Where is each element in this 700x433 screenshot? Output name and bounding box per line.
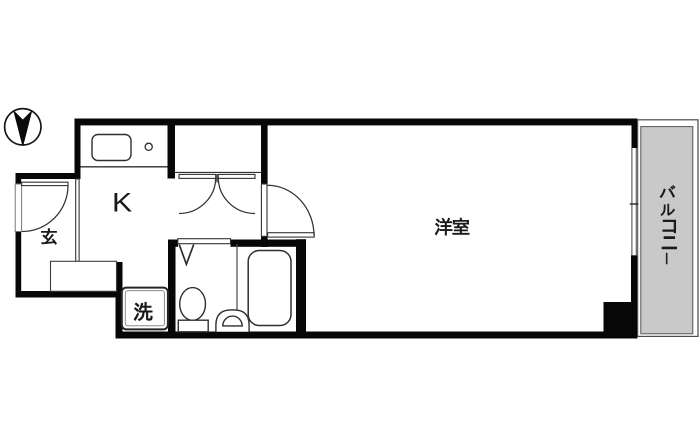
- svg-text:K: K: [112, 188, 132, 218]
